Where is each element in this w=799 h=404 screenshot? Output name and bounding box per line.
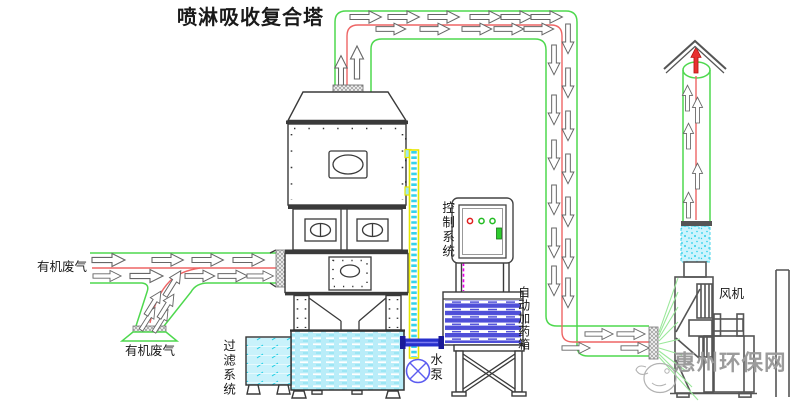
label-control-system: 控制系统 — [440, 201, 453, 259]
spray-water-pipe — [405, 138, 419, 358]
panel-switch — [497, 228, 502, 239]
main-water-tank — [290, 331, 405, 399]
water-pump — [407, 360, 430, 383]
indicator-light-red — [467, 218, 472, 223]
duct-fan-connection — [659, 278, 698, 400]
label-fan: 风机 — [719, 288, 744, 301]
diagram-page: 喷淋吸收复合塔 有机废气 有机废气 过滤系统 控制系统 水泵 自动加药箱 风机 … — [0, 0, 799, 404]
indicator-light-green — [479, 218, 484, 223]
flex-connector — [681, 221, 712, 277]
control-panel — [452, 198, 513, 293]
watermark-text: 惠州环保网 — [674, 352, 787, 375]
filter-tank — [246, 337, 291, 394]
label-organic-gas-branch: 有机废气 — [125, 345, 175, 358]
label-filter-system: 过滤系统 — [221, 339, 234, 397]
water-pipe — [400, 336, 444, 349]
dosing-tank — [443, 292, 523, 345]
diagram-canvas — [0, 0, 799, 404]
exhaust-stack — [682, 47, 710, 221]
label-water-pump: 水泵 — [428, 353, 441, 382]
watermark-logo — [636, 364, 676, 393]
diagram-title: 喷淋吸收复合塔 — [177, 8, 324, 29]
inlet-duct — [90, 250, 285, 341]
label-auto-dosing-box: 自动加药箱 — [517, 286, 530, 351]
dosing-tank-stand — [452, 345, 526, 396]
spray-tower — [285, 85, 408, 330]
label-organic-gas-left: 有机废气 — [37, 261, 87, 274]
indicator-light-green — [490, 218, 495, 223]
